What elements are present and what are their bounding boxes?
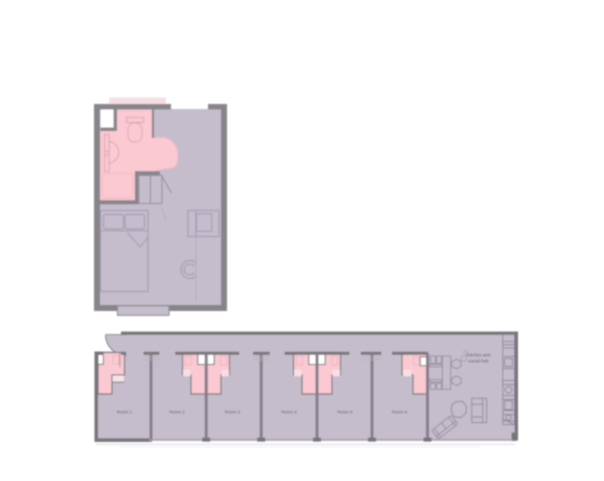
svg-text:Room 5: Room 5 bbox=[337, 409, 353, 414]
svg-text:Room 3: Room 3 bbox=[225, 409, 241, 414]
svg-text:social hub: social hub bbox=[468, 358, 489, 363]
svg-text:Room 6: Room 6 bbox=[392, 409, 408, 414]
svg-text:Room 1: Room 1 bbox=[117, 409, 133, 414]
svg-text:Kitchen and: Kitchen and bbox=[467, 352, 491, 357]
svg-text:Room 2: Room 2 bbox=[169, 409, 185, 414]
svg-text:Room 4: Room 4 bbox=[281, 409, 297, 414]
